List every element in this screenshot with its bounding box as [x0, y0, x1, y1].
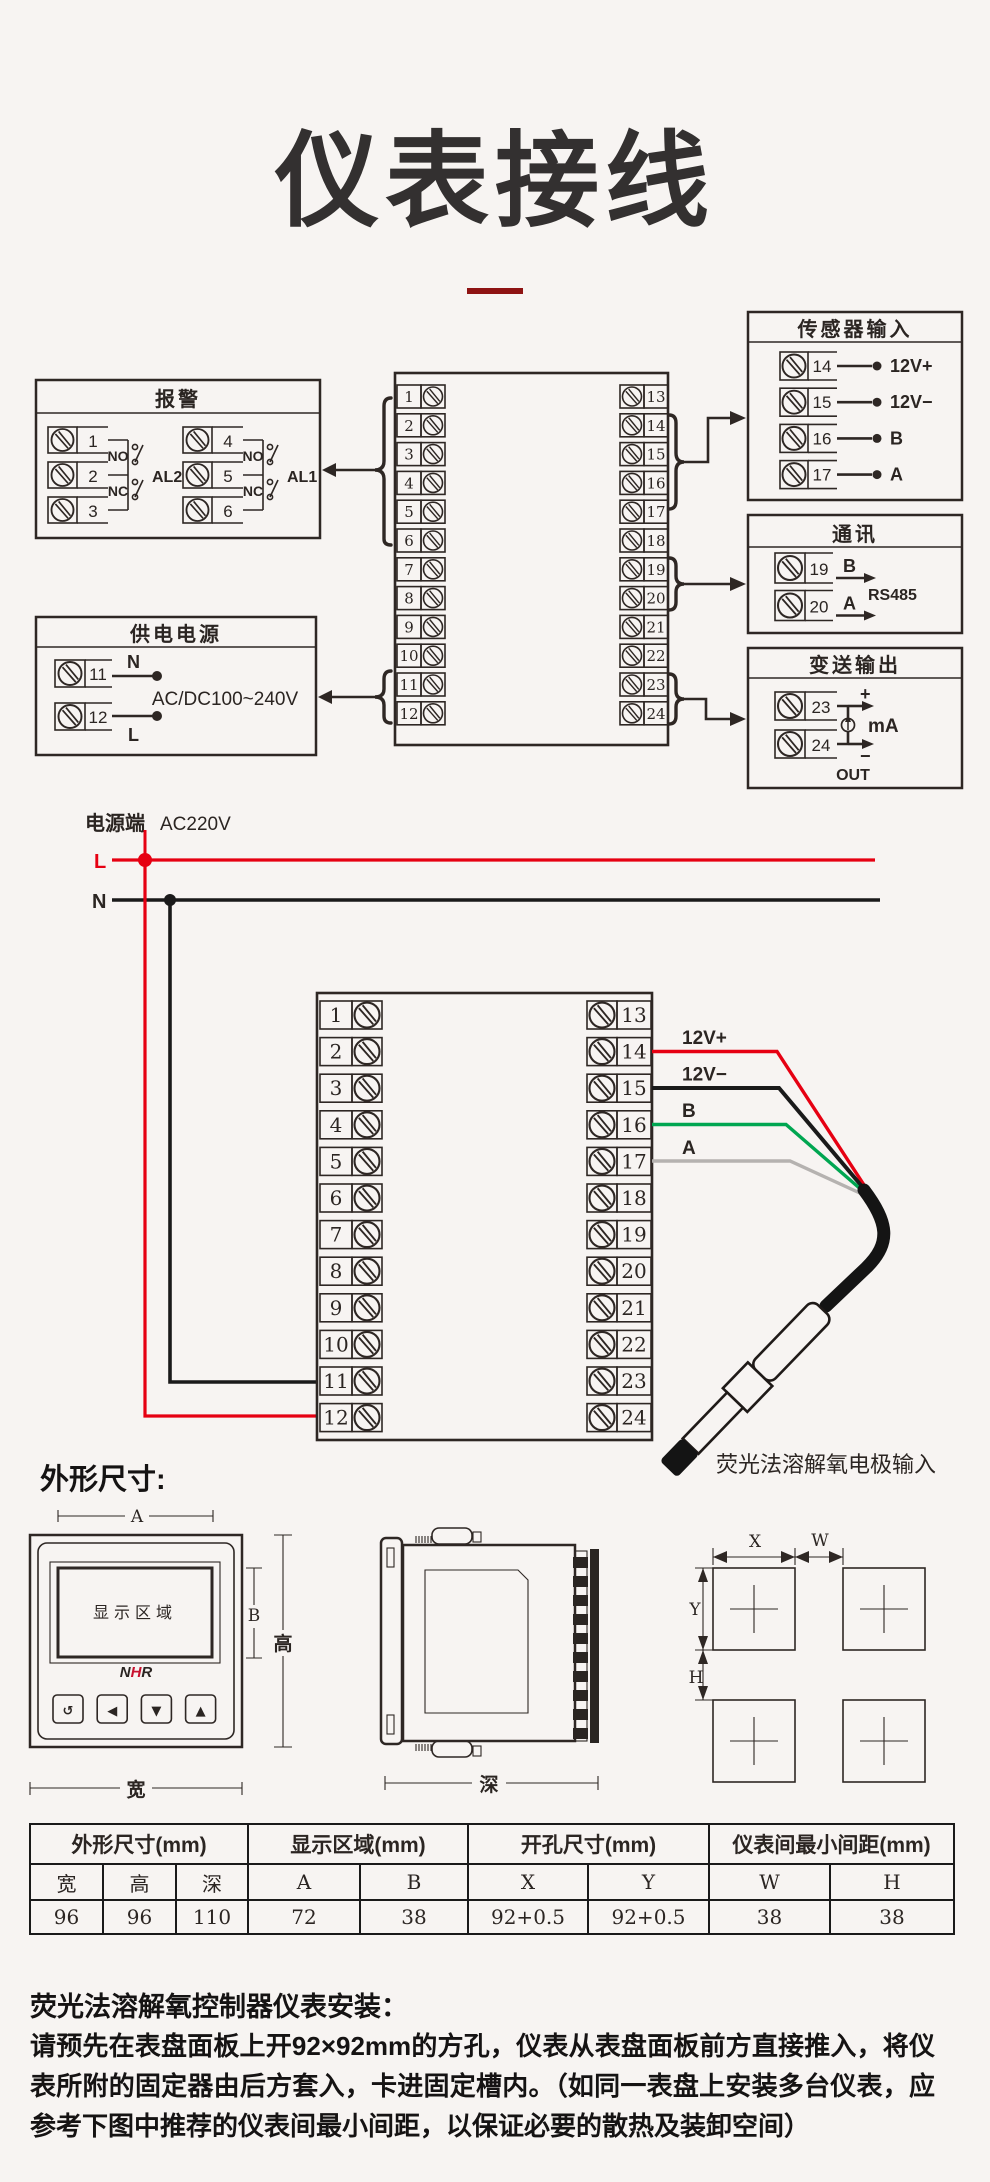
- brace-alarm: [375, 398, 391, 545]
- terminal-row: 2: [320, 1038, 382, 1066]
- svg-text:2: 2: [330, 1040, 343, 1064]
- wiring-diagram-terminals: 报警 1 2: [0, 300, 990, 800]
- svg-text:19: 19: [646, 561, 665, 579]
- value-cell: 38: [360, 1900, 468, 1934]
- terminal-row: 9: [320, 1294, 382, 1322]
- terminal-row: 15: [620, 443, 668, 466]
- svg-text:16: 16: [813, 429, 832, 448]
- svg-text:3: 3: [88, 502, 97, 521]
- svg-text:21: 21: [621, 1296, 646, 1320]
- spec-table: 外形尺寸(mm) 显示区域(mm) 开孔尺寸(mm) 仪表间最小间距(mm) 宽…: [29, 1823, 955, 1935]
- cutout-view: X W Y H: [688, 1531, 925, 1782]
- svg-text:16: 16: [646, 474, 665, 492]
- svg-text:6: 6: [330, 1186, 343, 1210]
- terminal-row: 18: [587, 1184, 651, 1212]
- panel-button: ↺: [53, 1695, 83, 1723]
- svg-text:18: 18: [621, 1186, 646, 1210]
- svg-text:23: 23: [621, 1369, 646, 1393]
- terminal-row: 10: [397, 644, 445, 667]
- terminal-row: 8: [397, 587, 445, 610]
- install-heading: 荧光法溶解氧控制器仪表安装：: [30, 1985, 408, 2024]
- terminal-row: 20: [620, 587, 668, 610]
- dimension-drawings: 显示区域 NHR ↺ ◀ ▼ ▲ A: [0, 1490, 990, 1820]
- svg-text:2: 2: [404, 417, 414, 435]
- arrow-to-output: [730, 712, 746, 726]
- svg-text:9: 9: [404, 618, 414, 636]
- terminal-row: 2: [397, 414, 445, 437]
- height-label: 高: [273, 1632, 292, 1655]
- svg-text:B: B: [890, 428, 903, 448]
- side-view: 深: [381, 1528, 599, 1796]
- svg-text:16: 16: [621, 1113, 646, 1137]
- sensor-terminal-row: 14 12V+: [780, 352, 933, 380]
- comm-box: 通讯 19 B 20 A: [748, 515, 962, 633]
- svg-text:23: 23: [646, 676, 665, 694]
- terminal-row: 11: [320, 1367, 382, 1395]
- dim-x-label: X: [749, 1532, 762, 1552]
- main-block-left-terminals: 1 2 3 4: [397, 385, 445, 725]
- svg-text:18: 18: [646, 532, 665, 550]
- svg-text:11: 11: [323, 1369, 348, 1393]
- wire-label: 12V+: [682, 1028, 727, 1049]
- svg-text:12: 12: [323, 1406, 348, 1430]
- n-wire-to-11: [170, 900, 317, 1382]
- terminal-row: 15: [587, 1074, 651, 1102]
- svg-text:↺: ↺: [63, 1704, 74, 1719]
- ma-label: mA: [868, 716, 899, 737]
- terminal-row: 11: [397, 673, 445, 696]
- dim-w-label: W: [811, 1531, 829, 1551]
- header-cell: 深: [176, 1864, 248, 1900]
- svg-text:4: 4: [404, 474, 414, 492]
- group-spacing: 仪表间最小间距(mm): [709, 1824, 954, 1864]
- svg-text:17: 17: [646, 503, 665, 521]
- terminal-row: 20: [587, 1257, 651, 1285]
- terminal: 3: [48, 497, 108, 523]
- svg-text:24: 24: [812, 736, 831, 755]
- mount-clamp-top: [416, 1528, 481, 1544]
- svg-text:15: 15: [646, 446, 665, 464]
- svg-text:10: 10: [399, 647, 418, 665]
- svg-text:5: 5: [223, 467, 232, 486]
- svg-text:3: 3: [404, 446, 414, 464]
- terminal-row: 17: [587, 1147, 651, 1175]
- svg-text:20: 20: [621, 1259, 646, 1283]
- terminal-row: 7: [320, 1221, 382, 1249]
- svg-text:4: 4: [223, 432, 232, 451]
- l-line-label: L: [94, 851, 106, 873]
- value-cell: 96: [30, 1900, 103, 1934]
- dim-a-label: A: [130, 1507, 144, 1527]
- svg-text:14: 14: [621, 1040, 646, 1064]
- terminal-row: 16: [620, 471, 668, 494]
- header-cell: 高: [103, 1864, 176, 1900]
- probe-cable: [826, 1190, 884, 1306]
- terminal: 11: [55, 660, 112, 687]
- block2-right-terminals: 13 14 15 16: [587, 1001, 651, 1432]
- dim-x-w: X W: [713, 1531, 843, 1565]
- terminal-row: 24: [620, 702, 668, 725]
- sensor-terminal-row: 16 B: [780, 424, 903, 452]
- svg-text:▲: ▲: [196, 1704, 206, 1719]
- comm-terminal-row: 19 B: [775, 553, 876, 583]
- do-probe: 荧光法溶解氧电极输入: [656, 1190, 936, 1481]
- brace-power: [375, 671, 391, 723]
- header-cell: Y: [588, 1864, 709, 1900]
- svg-text:17: 17: [813, 466, 832, 485]
- svg-text:19: 19: [621, 1223, 646, 1247]
- svg-text:▼: ▼: [151, 1704, 161, 1719]
- brace-sensor: [669, 415, 684, 509]
- brace-comm: [669, 558, 684, 610]
- value-cell: 92+0.5: [468, 1900, 588, 1934]
- front-view: 显示区域 NHR ↺ ◀ ▼ ▲ A: [30, 1507, 293, 1801]
- svg-text:12V−: 12V−: [890, 392, 933, 412]
- dim-b: B: [246, 1568, 262, 1658]
- svg-text:A: A: [890, 465, 903, 485]
- arrow-to-sensor: [730, 411, 746, 425]
- group-display: 显示区域(mm): [248, 1824, 468, 1864]
- svg-text:14: 14: [813, 357, 832, 376]
- svg-text:6: 6: [223, 502, 232, 521]
- value-cell: 110: [176, 1900, 248, 1934]
- alarm-terminals-al2: 1 2 3: [48, 427, 108, 523]
- terminal-row: 23: [587, 1367, 651, 1395]
- terminal-row: 22: [620, 644, 668, 667]
- front-buttons: ↺ ◀ ▼ ▲: [53, 1695, 216, 1723]
- svg-text:15: 15: [621, 1076, 646, 1100]
- svg-text:17: 17: [621, 1149, 646, 1173]
- terminal-row: 6: [320, 1184, 382, 1212]
- voltage-label: AC220V: [160, 814, 231, 835]
- svg-text:19: 19: [810, 560, 829, 579]
- terminal-row: 18: [620, 529, 668, 552]
- nc-label: NC: [108, 483, 128, 499]
- sensor-terminal-row: 15 12V−: [780, 388, 933, 416]
- terminal-row: 4: [397, 471, 445, 494]
- svg-text:12: 12: [399, 705, 418, 723]
- probe-terminal-block: 1 2 3 4: [317, 993, 652, 1440]
- terminal-row: 1: [397, 385, 445, 408]
- brace-output: [669, 674, 684, 724]
- svg-text:11: 11: [399, 676, 418, 694]
- dim-y-label: Y: [688, 1600, 701, 1620]
- terminal: 4: [183, 427, 243, 453]
- terminal-row: 6: [397, 529, 445, 552]
- terminal-row: 10: [320, 1330, 382, 1358]
- svg-text:4: 4: [330, 1113, 343, 1137]
- terminal: 6: [183, 497, 243, 523]
- table-group-row: 外形尺寸(mm) 显示区域(mm) 开孔尺寸(mm) 仪表间最小间距(mm): [30, 1824, 954, 1864]
- wire-label: B: [682, 1101, 696, 1122]
- main-terminal-block: 1 2 3 4: [395, 373, 668, 745]
- title-underline: [467, 288, 523, 294]
- svg-text:10: 10: [323, 1332, 348, 1356]
- arrow-to-comm: [730, 577, 746, 591]
- panel-button: ▼: [141, 1695, 171, 1723]
- alarm-terminals-al1: 4 5 6: [183, 427, 243, 523]
- main-block-right-terminals: 13 14 15 16: [620, 385, 668, 725]
- dim-width: 宽: [30, 1778, 242, 1801]
- terminal: 5: [183, 462, 243, 488]
- terminal-row: 13: [620, 385, 668, 408]
- al2-label: AL2: [152, 469, 182, 486]
- wire-label: A: [682, 1138, 696, 1159]
- svg-text:7: 7: [330, 1223, 343, 1247]
- svg-text:14: 14: [646, 417, 665, 435]
- terminal: 1: [48, 427, 108, 453]
- comm-rows: 19 B 20 A: [775, 553, 876, 621]
- out-label: OUT: [836, 767, 870, 784]
- svg-text:24: 24: [621, 1406, 646, 1430]
- terminal-row: 21: [587, 1294, 651, 1322]
- rs485-label: RS485: [868, 587, 917, 604]
- dim-h-label: H: [689, 1668, 704, 1688]
- svg-text:1: 1: [88, 432, 97, 451]
- svg-text:22: 22: [621, 1332, 646, 1356]
- probe-label: 荧光法溶解氧电极输入: [716, 1452, 936, 1477]
- svg-text:20: 20: [646, 590, 665, 608]
- wire-a: [652, 1161, 862, 1194]
- terminal-row: 24: [587, 1404, 651, 1432]
- header-cell: X: [468, 1864, 588, 1900]
- terminal: 12: [55, 703, 112, 730]
- terminal-comb: [573, 1549, 599, 1743]
- terminal-row: 3: [320, 1074, 382, 1102]
- wire-label: 12V−: [682, 1065, 727, 1086]
- svg-text:15: 15: [813, 393, 832, 412]
- svg-text:A: A: [843, 594, 856, 614]
- svg-text:7: 7: [404, 561, 414, 579]
- svg-text:20: 20: [810, 598, 829, 617]
- svg-text:12: 12: [89, 708, 108, 727]
- terminal-row: 3: [397, 443, 445, 466]
- dim-height: 高: [273, 1535, 292, 1747]
- source-label: 电源端: [85, 812, 145, 835]
- dim-y-h: Y H: [688, 1568, 713, 1700]
- sensor-rows: 14 12V+ 15 12V−: [780, 352, 933, 489]
- terminal-row: 5: [397, 500, 445, 523]
- n-line-label: N: [92, 891, 106, 913]
- comm-terminal-row: 20 A: [775, 591, 876, 621]
- no-label: NO: [108, 448, 129, 464]
- svg-text:12V+: 12V+: [890, 356, 933, 376]
- value-cell: 38: [830, 1900, 954, 1934]
- probe-wires: 12V+12V−BA: [652, 1028, 866, 1194]
- wire-labels: 12V+12V−BA: [682, 1028, 727, 1159]
- value-cell: 38: [709, 1900, 830, 1934]
- dim-a: A: [58, 1507, 213, 1527]
- power-range: AC/DC100~240V: [152, 689, 299, 710]
- relay-al1: NO NC AL1: [243, 440, 318, 510]
- svg-text:2: 2: [88, 467, 97, 486]
- svg-text:13: 13: [621, 1003, 646, 1027]
- output-rows: 23 24: [775, 692, 837, 758]
- table-value-row: 9696110723892+0.592+0.53838: [30, 1900, 954, 1934]
- terminal-row: 19: [620, 558, 668, 581]
- terminal-row: 9: [397, 615, 445, 638]
- terminal-row: 8: [320, 1257, 382, 1285]
- svg-text:11: 11: [89, 665, 107, 684]
- svg-text:9: 9: [330, 1296, 343, 1320]
- no-label: NO: [243, 448, 264, 464]
- power-n-label: N: [127, 652, 140, 672]
- terminal-row: 21: [620, 615, 668, 638]
- comm-title: 通讯: [832, 523, 878, 546]
- header-cell: A: [248, 1864, 360, 1900]
- terminal-row: 14: [620, 414, 668, 437]
- value-cell: 72: [248, 1900, 360, 1934]
- terminal-row: 17: [620, 500, 668, 523]
- minus-label: −: [860, 746, 871, 766]
- mount-clamp-bottom: [416, 1741, 481, 1757]
- dim-depth: 深: [385, 1773, 598, 1796]
- svg-text:21: 21: [646, 618, 665, 636]
- output-terminal-row: 24: [775, 730, 837, 758]
- terminal-row: 14: [587, 1038, 651, 1066]
- terminal-row: 12: [320, 1404, 382, 1432]
- table-header-row: 宽高深ABXYWH: [30, 1864, 954, 1900]
- width-label: 宽: [126, 1778, 145, 1801]
- svg-text:23: 23: [812, 698, 831, 717]
- svg-text:24: 24: [646, 705, 665, 723]
- svg-text:1: 1: [404, 388, 414, 406]
- power-title: 供电电源: [129, 622, 222, 646]
- svg-text:22: 22: [646, 647, 665, 665]
- svg-text:5: 5: [404, 503, 414, 521]
- group-outline: 外形尺寸(mm): [30, 1824, 248, 1864]
- terminal-row: 7: [397, 558, 445, 581]
- page: 仪表接线 报警 1: [0, 0, 990, 2182]
- terminal-row: 19: [587, 1221, 651, 1249]
- depth-label: 深: [479, 1773, 498, 1796]
- arrow-to-power: [318, 690, 332, 704]
- ma-output-symbol: + − mA OUT: [836, 684, 899, 784]
- svg-text:8: 8: [404, 590, 414, 608]
- output-terminal-row: 23: [775, 692, 837, 720]
- sensor-title: 传感器输入: [797, 317, 913, 341]
- panel-button: ▲: [186, 1695, 216, 1723]
- svg-text:13: 13: [646, 388, 665, 406]
- al1-label: AL1: [287, 469, 317, 486]
- header-cell: 宽: [30, 1864, 103, 1900]
- install-body: 请预先在表盘面板上开92×92mm的方孔，仪表从表盘面板前方直接推入，将仪表所附…: [30, 2026, 935, 2146]
- svg-text:◀: ◀: [107, 1704, 117, 1719]
- connectors: [318, 398, 746, 726]
- terminal-row: 23: [620, 673, 668, 696]
- value-cell: 96: [103, 1900, 176, 1934]
- plus-label: +: [860, 684, 871, 704]
- display-area-label: 显示区域: [93, 1604, 177, 1622]
- header-cell: B: [360, 1864, 468, 1900]
- terminal-row: 16: [587, 1111, 651, 1139]
- arrow-to-alarm: [322, 463, 336, 477]
- sensor-terminal-row: 17 A: [780, 461, 903, 489]
- nc-label: NC: [243, 483, 263, 499]
- page-title: 仪表接线: [0, 96, 990, 247]
- power-l-label: L: [128, 725, 139, 745]
- nhr-logo: NHR: [120, 1664, 153, 1681]
- alarm-title: 报警: [155, 387, 201, 411]
- dim-b-label: B: [248, 1606, 261, 1626]
- terminal-row: 4: [320, 1111, 382, 1139]
- transmit-output-box: 变送输出 23 24: [748, 648, 962, 788]
- value-cell: 92+0.5: [588, 1900, 709, 1934]
- power-terminals: 11 12: [55, 660, 112, 730]
- alarm-box: 报警 1 2: [36, 380, 320, 538]
- cutout-crosses: [730, 1585, 908, 1765]
- group-cutout: 开孔尺寸(mm): [468, 1824, 709, 1864]
- header-cell: H: [830, 1864, 954, 1900]
- terminal-row: 13: [587, 1001, 651, 1029]
- output-title: 变送输出: [809, 653, 901, 677]
- sensor-input-box: 传感器输入 14 12V+ 15: [748, 312, 962, 500]
- svg-text:5: 5: [330, 1149, 343, 1173]
- terminal-row: 1: [320, 1001, 382, 1029]
- wiring-diagram-probe: 电源端 AC220V L N 1: [0, 795, 990, 1495]
- relay-al2: NO NC AL2: [108, 440, 183, 510]
- terminal: 2: [48, 462, 108, 488]
- svg-text:1: 1: [330, 1003, 343, 1027]
- block2-left-terminals: 1 2 3 4: [320, 1001, 382, 1432]
- svg-text:B: B: [843, 556, 856, 576]
- terminal-row: 5: [320, 1147, 382, 1175]
- panel-button: ◀: [97, 1695, 127, 1723]
- power-supply-box: 供电电源 11 12 N L AC/D: [36, 617, 316, 755]
- svg-text:8: 8: [330, 1259, 343, 1283]
- header-cell: W: [709, 1864, 830, 1900]
- svg-text:3: 3: [330, 1076, 343, 1100]
- terminal-row: 22: [587, 1330, 651, 1358]
- svg-text:6: 6: [404, 532, 414, 550]
- terminal-row: 12: [397, 702, 445, 725]
